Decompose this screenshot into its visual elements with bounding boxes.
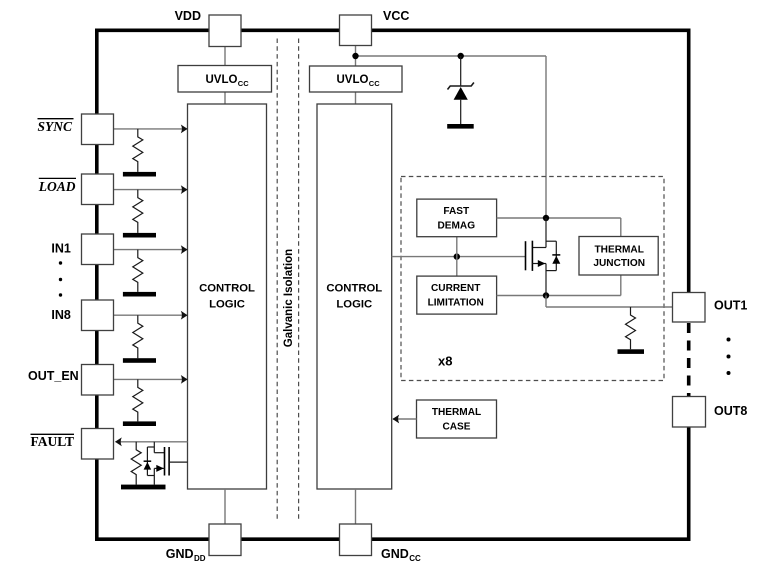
svg-text:CONTROL: CONTROL	[326, 282, 382, 294]
svg-text:CC: CC	[409, 554, 421, 563]
svg-text:OUT1: OUT1	[714, 299, 747, 313]
svg-text:FAULT: FAULT	[31, 434, 75, 449]
svg-text:THERMAL: THERMAL	[432, 407, 481, 418]
svg-text:IN1: IN1	[51, 242, 71, 256]
svg-text:LOGIC: LOGIC	[209, 299, 245, 311]
svg-text:VDD: VDD	[175, 9, 201, 23]
svg-text:GND: GND	[166, 547, 194, 561]
svg-text:VCC: VCC	[383, 9, 409, 23]
svg-text:OUT_EN: OUT_EN	[28, 369, 79, 383]
svg-text:CC: CC	[238, 79, 249, 88]
svg-text:LOAD: LOAD	[38, 179, 76, 194]
svg-text:CASE: CASE	[442, 422, 470, 433]
svg-text:JUNCTION: JUNCTION	[593, 258, 645, 269]
svg-text:Galvanic Isolation: Galvanic Isolation	[283, 249, 295, 347]
svg-text:CC: CC	[369, 79, 380, 88]
svg-text:UVLO: UVLO	[337, 74, 369, 86]
svg-text:CURRENT: CURRENT	[431, 283, 481, 294]
svg-text:THERMAL: THERMAL	[595, 244, 644, 255]
svg-text:CONTROL: CONTROL	[199, 282, 255, 294]
svg-text:DD: DD	[194, 554, 206, 563]
svg-text:UVLO: UVLO	[206, 74, 238, 86]
svg-text:DEMAG: DEMAG	[438, 220, 476, 231]
svg-text:OUT8: OUT8	[714, 404, 747, 418]
svg-text:FAST: FAST	[443, 206, 470, 217]
svg-text:GND: GND	[381, 547, 409, 561]
svg-text:SYNC: SYNC	[38, 119, 74, 134]
svg-text:IN8: IN8	[51, 308, 71, 322]
svg-text:x8: x8	[438, 354, 452, 369]
svg-text:LOGIC: LOGIC	[336, 299, 372, 311]
svg-text:LIMITATION: LIMITATION	[428, 297, 484, 308]
